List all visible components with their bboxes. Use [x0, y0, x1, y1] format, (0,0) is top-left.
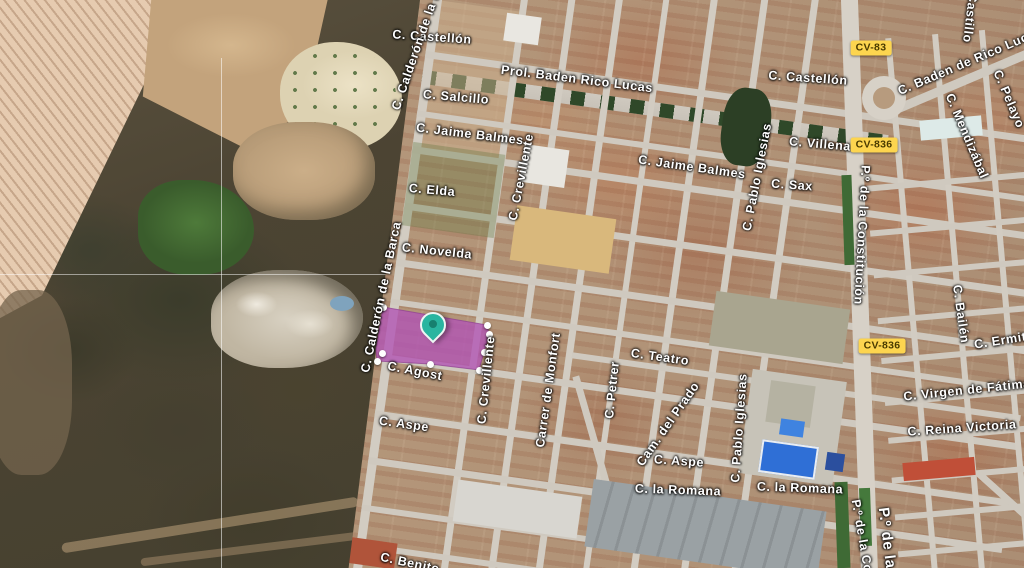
location-pin[interactable] — [420, 312, 446, 344]
survey-line — [0, 274, 420, 275]
rubble-patch — [233, 122, 375, 220]
green-field — [138, 180, 254, 275]
street-label-c-sax: C. Sax — [771, 177, 814, 194]
pin-hole — [429, 320, 437, 328]
survey-line — [221, 58, 222, 568]
farmland-area — [0, 0, 420, 568]
quarry-patch — [211, 270, 363, 368]
dirt-trail — [140, 532, 359, 567]
street — [895, 501, 1024, 521]
map-canvas[interactable]: C. CastellónProl. Baden Rico LucasC. Sal… — [0, 0, 1024, 568]
parcel-vertex-dot — [379, 350, 386, 357]
street-label-c-la-romana: C. la Romana — [635, 481, 722, 498]
road-shield-cv-836: CV-836 — [859, 339, 906, 354]
road-shield-cv-836: CV-836 — [851, 138, 898, 153]
parcel-vertex-dot — [484, 322, 491, 329]
street-label-c-la-romana: C. la Romana — [757, 479, 844, 496]
brown-field — [0, 290, 72, 475]
pond — [330, 296, 354, 311]
road-shield-cv-83: CV-83 — [851, 41, 892, 56]
street — [898, 537, 1024, 557]
street — [878, 304, 1024, 324]
